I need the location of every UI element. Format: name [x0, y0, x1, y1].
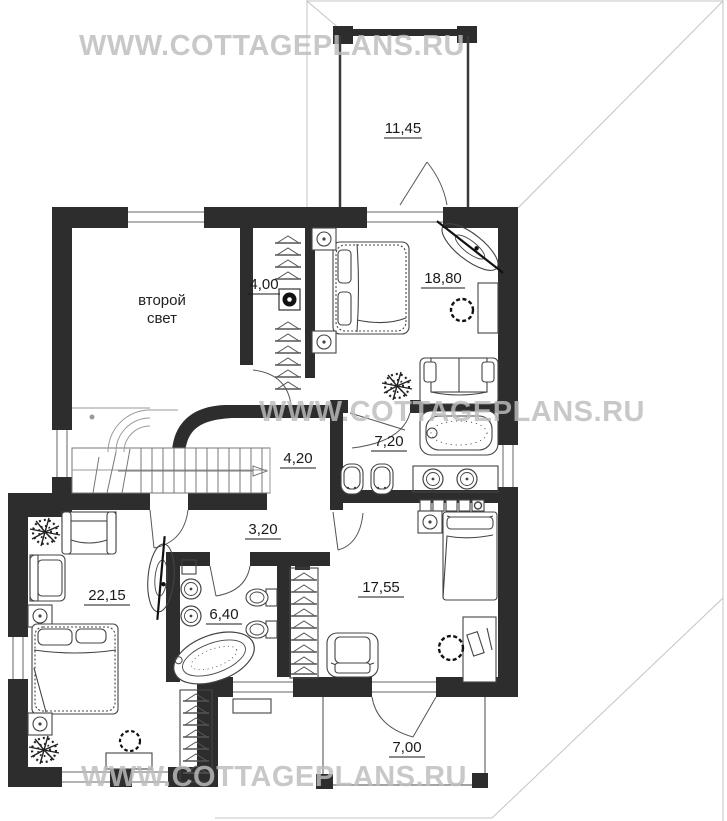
- staircase: [72, 408, 270, 493]
- label-bedroom-top: 18,80: [424, 270, 462, 287]
- label-terrace: 7,00: [392, 739, 421, 756]
- wall-bath2-right: [277, 552, 291, 682]
- nightstand-top-a: [312, 228, 336, 250]
- label-bathroom-top: 7,20: [374, 433, 403, 450]
- watermark-top: WWW.COTTAGEPLANS.RU: [79, 30, 465, 62]
- desk-top: [478, 283, 498, 333]
- bathroom-bottom-fixtures: [167, 560, 277, 694]
- plant-left-top: [30, 518, 60, 546]
- plant-left-bottom: [29, 736, 59, 764]
- window-bottom-right: [233, 677, 293, 697]
- sink-bottom-a: [181, 579, 201, 599]
- door-terrace: [372, 697, 436, 737]
- wardrobe-top: [275, 236, 301, 389]
- door-bedroom-right: [333, 512, 363, 550]
- label-corridor: 3,20: [248, 521, 277, 538]
- window-left-lower: [8, 637, 28, 679]
- balcony-door-opening: [367, 207, 443, 228]
- desk-right: [439, 617, 496, 682]
- wall-under-stairs-b: [188, 493, 267, 510]
- sink-bottom-b: [181, 606, 201, 626]
- door-bathroom-bottom: [210, 566, 250, 596]
- wardrobe-right-hangers: [290, 568, 318, 678]
- terrace-post-right: [472, 773, 488, 788]
- window-sill: [233, 699, 271, 713]
- sink-top-b: [457, 469, 477, 489]
- single-bed-right: [443, 512, 497, 600]
- label-bedroom-right: 17,55: [362, 579, 400, 596]
- desk-chair-right: [439, 636, 463, 660]
- label-wardrobe: 4,00: [249, 276, 278, 293]
- door-balcony: [400, 162, 447, 205]
- label-second-light-1: второй: [138, 292, 186, 309]
- door-bedroom-left: [150, 510, 188, 548]
- chimney-shaft: [279, 289, 300, 310]
- armchair-left: [30, 555, 65, 601]
- label-hall: 4,20: [283, 450, 312, 467]
- window-right: [498, 445, 518, 487]
- label-balcony: 11,45: [385, 120, 421, 137]
- washer-row: [420, 500, 484, 511]
- label-bedroom-left: 22,15: [88, 587, 126, 604]
- double-bed-top: [333, 242, 409, 334]
- stair-rails: [108, 410, 178, 452]
- bedroom-top-furniture: [312, 211, 511, 404]
- sofa-left: [62, 512, 116, 554]
- wall-under-stairs-a: [52, 493, 150, 510]
- floor-plan-canvas: 11,45 4,00 18,80 второй свет 7,20 4,20 3…: [0, 0, 727, 821]
- toilet-d: [246, 621, 277, 638]
- floor-plan-svg: 11,45 4,00 18,80 второй свет 7,20 4,20 3…: [0, 0, 727, 821]
- stair-start-dot: [90, 415, 95, 420]
- nightstand-top-b: [312, 331, 336, 353]
- label-bathroom-bottom: 6,40: [209, 606, 238, 623]
- double-bed-left: [32, 624, 118, 714]
- nightstand-left-b: [28, 713, 52, 735]
- nightstand-right: [418, 511, 442, 533]
- watermark-bottom: WWW.COTTAGEPLANS.RU: [81, 761, 467, 793]
- window-left: [52, 430, 72, 477]
- wall-wardrobe-left: [240, 228, 253, 365]
- toilet-a: [341, 464, 363, 494]
- toilet-c: [246, 589, 277, 606]
- armchair-right: [327, 633, 378, 677]
- sink-top-a: [423, 469, 443, 489]
- window-top: [128, 207, 204, 228]
- watermark-middle: WWW.COTTAGEPLANS.RU: [259, 396, 645, 428]
- terrace-door-opening: [372, 677, 436, 697]
- toilet-b: [371, 464, 393, 494]
- label-second-light-2: свет: [147, 310, 177, 327]
- desk-chair-top: [451, 299, 473, 321]
